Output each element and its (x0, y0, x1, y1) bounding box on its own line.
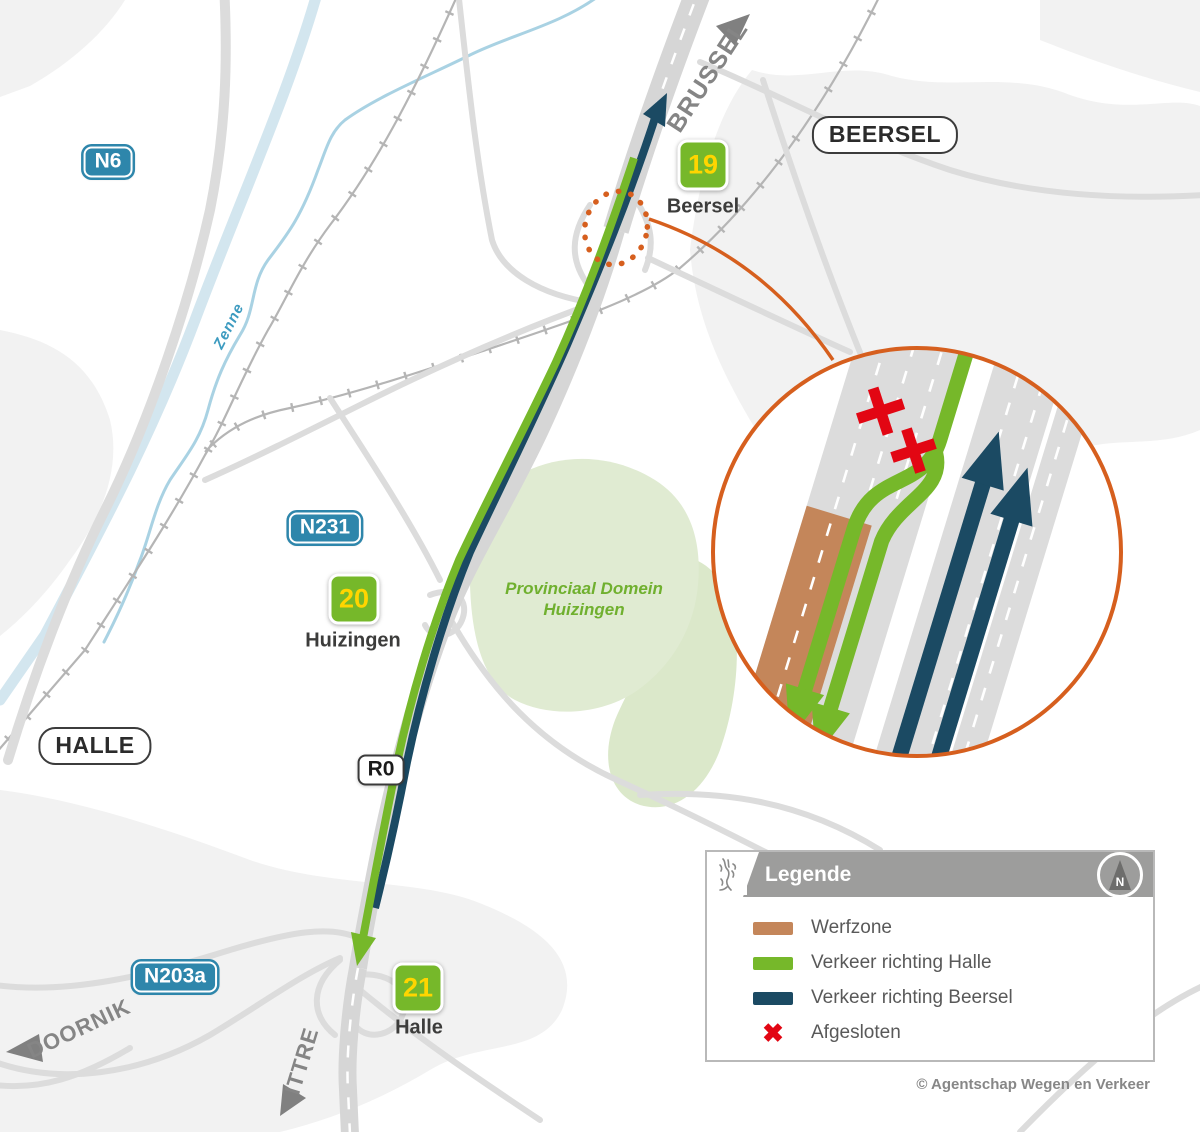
legend-items: Werfzone Verkeer richting Halle Verkeer … (707, 897, 1153, 1044)
exit-name-halle: Halle (395, 1017, 443, 1040)
area-label-line2: Huizingen (505, 599, 663, 620)
traffic-map: N6 N231 N203a R0 BEERSEL HALLE BRUSSEL D… (0, 0, 1200, 1132)
road-badge-n231: N231 (289, 513, 361, 544)
area-label-line1: Provinciaal Domein (505, 578, 663, 599)
legend-row-richting-beersel: Verkeer richting Beersel (753, 987, 1153, 1009)
compass-north-label: N (1116, 875, 1125, 889)
legend-label: Werfzone (811, 917, 892, 939)
legend-row-richting-halle: Verkeer richting Halle (753, 952, 1153, 974)
legend-row-afgesloten: ✖ Afgesloten (753, 1022, 1153, 1044)
legend-label: Verkeer richting Beersel (811, 987, 1013, 1009)
road-badge-r0: R0 (358, 755, 405, 786)
road-badge-n203a: N203a (133, 962, 217, 993)
road-badge-n6: N6 (84, 147, 133, 178)
exit-badge-21: 21 (393, 963, 444, 1014)
legend-title: Legende (765, 863, 851, 887)
town-badge-halle: HALLE (38, 727, 151, 765)
provincial-domain-area (470, 459, 737, 807)
beersel-line-swatch (753, 992, 793, 1005)
halle-line-swatch (753, 957, 793, 970)
exit-badge-20: 20 (329, 574, 380, 625)
copyright-notice: © Agentschap Wegen en Verkeer (690, 1076, 1150, 1093)
flanders-lion-icon (709, 854, 747, 895)
town-badge-beersel: BEERSEL (812, 116, 958, 154)
legend-label: Verkeer richting Halle (811, 952, 992, 974)
compass-icon: N (1097, 852, 1143, 898)
legend-label: Afgesloten (811, 1022, 901, 1044)
area-label-provinciaal-domein: Provinciaal Domein Huizingen (505, 578, 663, 621)
closed-x-icon: ✖ (753, 1022, 793, 1044)
exit-name-beersel: Beersel (667, 196, 739, 219)
legend-header: Legende N (707, 852, 1153, 897)
legend-title-band: Legende (743, 852, 1153, 897)
legend-panel: Legende N Werfzone Verkeer richting Ha (705, 850, 1155, 1062)
werfzone-swatch (753, 922, 793, 935)
exit-badge-19: 19 (678, 140, 729, 191)
exit-name-huizingen: Huizingen (305, 630, 401, 653)
legend-row-werfzone: Werfzone (753, 917, 1153, 939)
